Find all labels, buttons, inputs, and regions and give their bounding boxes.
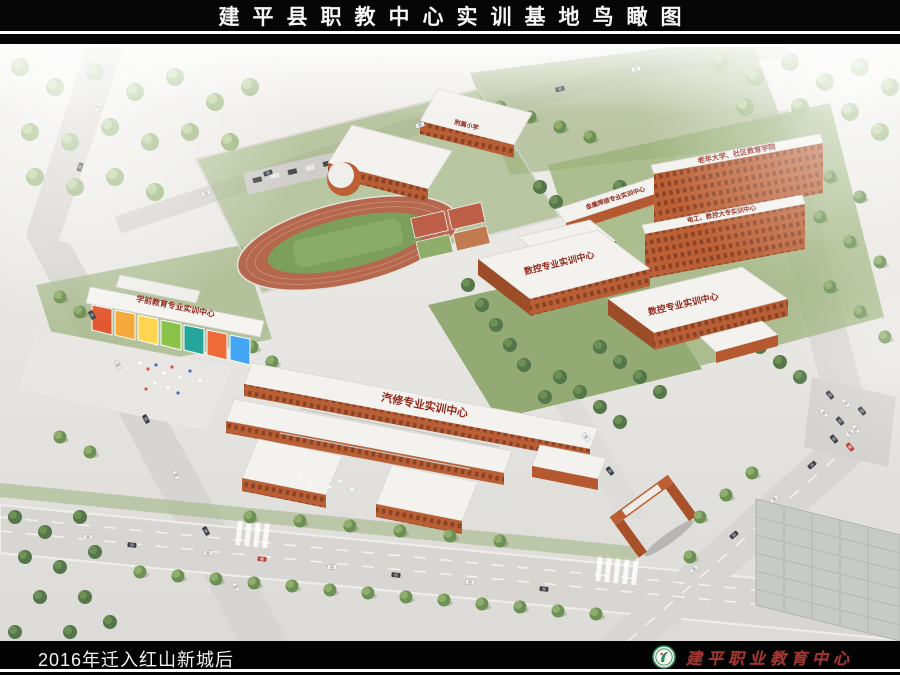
- title-bar: 建平县职教中心实训基地鸟瞰图: [0, 0, 900, 31]
- logo-text: 建平职业教育中心: [686, 645, 854, 669]
- logo-group: 建平职业教育中心: [652, 645, 854, 669]
- slide-frame: 建平县职教中心实训基地鸟瞰图: [0, 0, 900, 675]
- divider-line-bottom: [0, 669, 900, 672]
- header-spacer: [0, 34, 900, 44]
- caption-bar: 2016年迁入红山新城后 建平职业教育中心: [0, 641, 900, 675]
- aerial-rendering: 附属小学 金属焊接专业实训中心 老年大学、社区教育学院 电工、数控大专实训中心: [0, 47, 900, 641]
- school-logo-icon: [652, 645, 676, 669]
- page-title: 建平县职教中心实训基地鸟瞰图: [206, 1, 695, 31]
